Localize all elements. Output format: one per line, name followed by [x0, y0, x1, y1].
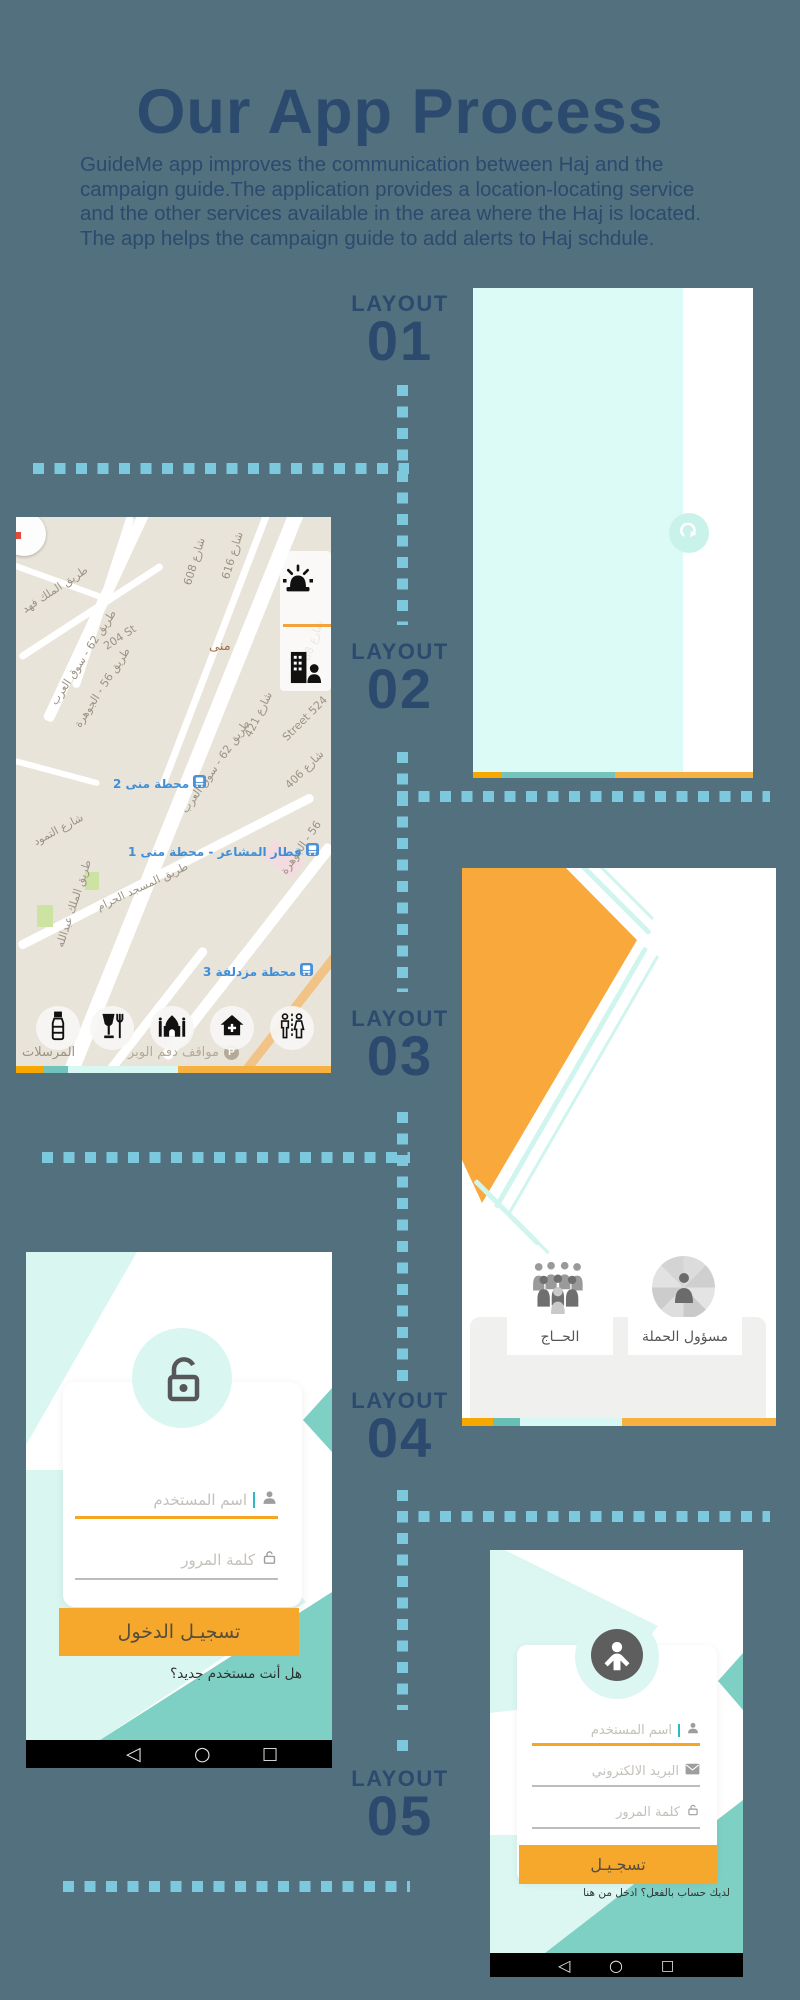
email-field[interactable]: البريد الالكتروني — [532, 1761, 700, 1781]
password-placeholder: كلمة المرور — [616, 1805, 680, 1820]
home-add-button[interactable] — [210, 1006, 254, 1050]
manager-avatar-icon — [652, 1256, 715, 1319]
layout-label-01: LAYOUT 01 — [340, 293, 460, 366]
login-button[interactable]: تسجيـل الدخول — [59, 1608, 299, 1656]
street-label: شارع التمود — [31, 811, 85, 848]
dotted-connector — [397, 752, 408, 992]
transit-station-label: محطة منى 2 — [113, 775, 206, 793]
pilgrim-role-card[interactable]: الحــاج — [507, 1317, 613, 1355]
username-placeholder: اسم المستخدم — [153, 1491, 247, 1509]
phone-role-select-screen: الحــاج مسؤول الحملة — [462, 868, 776, 1426]
map-road — [16, 757, 100, 786]
description-line: and the other services available in the … — [80, 202, 740, 227]
email-placeholder: البريد الالكتروني — [592, 1764, 679, 1779]
map-progress-bar — [16, 1066, 331, 1073]
panel-accent-line — [283, 624, 331, 627]
phone-login-screen: اسم المستخدم كلمة المرور تسجيـل الدخول ه… — [26, 1252, 332, 1768]
mosque-icon — [158, 1013, 186, 1044]
curved-arrow-icon — [675, 517, 703, 550]
layout-number: 02 — [340, 663, 460, 714]
description-line: campaign guide.The application provides … — [80, 178, 740, 203]
username-field[interactable]: اسم المستخدم — [532, 1720, 700, 1740]
layout-label-02: LAYOUT 02 — [340, 641, 460, 714]
building-person-icon[interactable] — [287, 650, 322, 685]
street-label: طريق الملك عبدالله — [53, 858, 94, 949]
manager-role-card[interactable]: مسؤول الحملة — [628, 1317, 742, 1355]
nav-back-icon[interactable]: ◁ — [558, 1956, 570, 1975]
description-line: The app helps the campaign guide to add … — [80, 227, 740, 252]
restroom-button[interactable] — [270, 1006, 314, 1050]
station-name: محطة منى 2 — [113, 777, 189, 791]
layout-number: 01 — [340, 315, 460, 366]
street-label: شارع 608 — [181, 536, 208, 587]
page-title: Our App Process — [0, 76, 800, 148]
metro-icon — [300, 963, 313, 981]
avatar-person-icon — [591, 1629, 643, 1681]
metro-icon — [306, 843, 319, 861]
new-user-link[interactable]: هل أنت مستخدم جديد؟ — [122, 1666, 302, 1682]
envelope-icon — [685, 1762, 700, 1780]
dotted-connector — [397, 1490, 408, 1710]
person-icon — [261, 1489, 278, 1511]
description-line: GuideMe app improves the communication b… — [80, 153, 740, 178]
signin-link[interactable]: لديك حساب بالفعل؟ ادخل من هنا — [550, 1887, 730, 1899]
infographic-canvas: Our App Process GuideMe app improves the… — [0, 0, 800, 2000]
layout-number: 04 — [340, 1412, 460, 1463]
lock-icon — [261, 1549, 278, 1571]
person-icon — [686, 1721, 700, 1740]
nav-home-icon[interactable]: ○ — [609, 1956, 623, 1975]
password-placeholder: كلمة المرور — [181, 1551, 255, 1569]
marker-red-label — [16, 532, 21, 539]
text-cursor — [678, 1724, 680, 1737]
layout-label-05: LAYOUT 05 — [340, 1768, 460, 1841]
home-add-icon — [219, 1013, 245, 1043]
map-green-area — [37, 905, 53, 927]
water-bottle-button[interactable] — [36, 1006, 80, 1050]
layout-label-03: LAYOUT 03 — [340, 1008, 460, 1081]
password-underline — [532, 1827, 700, 1829]
role-progress-bar — [462, 1418, 776, 1426]
metro-icon — [193, 775, 206, 793]
street-label: Street 524 — [280, 693, 330, 743]
password-field[interactable]: كلمة المرور — [75, 1548, 278, 1572]
pilgrims-crowd-icon — [530, 1262, 587, 1314]
station-name: محطة مزدلفة 3 — [203, 965, 296, 979]
username-underline — [75, 1516, 278, 1519]
email-underline — [532, 1785, 700, 1787]
username-placeholder: اسم المستخدم — [591, 1723, 672, 1738]
next-button[interactable] — [669, 513, 709, 553]
phone-register-screen: اسم المستخدم البريد الالكتروني كلمة المر… — [490, 1550, 743, 1977]
layout-number: 05 — [340, 1790, 460, 1841]
splash-mint-panel — [473, 288, 683, 772]
map-marker — [16, 517, 46, 556]
phone-map-screen: طريق الملك فهد شارع 608 شارع 616 204 St … — [16, 517, 331, 1073]
dotted-connector — [42, 1152, 410, 1163]
text-cursor — [253, 1492, 255, 1508]
dotted-connector — [63, 1881, 410, 1892]
nav-home-icon[interactable]: ○ — [194, 1743, 211, 1765]
station-name: قطار المشاعر - محطة منى 1 — [128, 845, 302, 859]
password-underline — [75, 1578, 278, 1580]
city-label: منى — [209, 639, 231, 654]
street-label: شارع 406 — [283, 748, 327, 792]
phone-splash-screen — [473, 288, 753, 778]
mosque-button[interactable] — [150, 1006, 194, 1050]
splash-progress-bar — [473, 772, 753, 778]
transit-station-label: قطار المشاعر - محطة منى 1 — [128, 843, 319, 861]
water-bottle-icon — [49, 1011, 67, 1046]
food-drink-icon — [99, 1012, 125, 1045]
dotted-connector — [397, 1112, 408, 1384]
street-label: طريق 62 - سوق العرب — [48, 608, 119, 708]
username-underline — [532, 1743, 700, 1746]
layout-number: 03 — [340, 1030, 460, 1081]
food-drink-button[interactable] — [90, 1006, 134, 1050]
nav-recents-icon[interactable]: □ — [262, 1744, 278, 1764]
transit-station-label: محطة مزدلفة 3 — [203, 963, 313, 981]
android-navbar — [26, 1740, 332, 1768]
unlock-icon — [158, 1352, 206, 1409]
dotted-connector — [33, 463, 409, 474]
page-description: GuideMe app improves the communication b… — [80, 153, 740, 251]
alarm-icon[interactable] — [283, 562, 313, 596]
lock-icon — [686, 1803, 700, 1822]
nav-back-icon[interactable]: ◁ — [126, 1743, 141, 1765]
dotted-connector — [397, 791, 770, 802]
username-field[interactable]: اسم المستخدم — [75, 1488, 278, 1512]
restroom-icon — [278, 1012, 306, 1045]
dotted-connector — [397, 1740, 408, 1751]
register-button[interactable]: تسجـيـل — [519, 1845, 717, 1884]
dotted-connector — [397, 1511, 770, 1522]
layout-label-04: LAYOUT 04 — [340, 1390, 460, 1463]
dotted-connector — [397, 385, 408, 625]
nav-recents-icon[interactable]: □ — [661, 1958, 674, 1974]
password-field[interactable]: كلمة المرور — [532, 1802, 700, 1822]
